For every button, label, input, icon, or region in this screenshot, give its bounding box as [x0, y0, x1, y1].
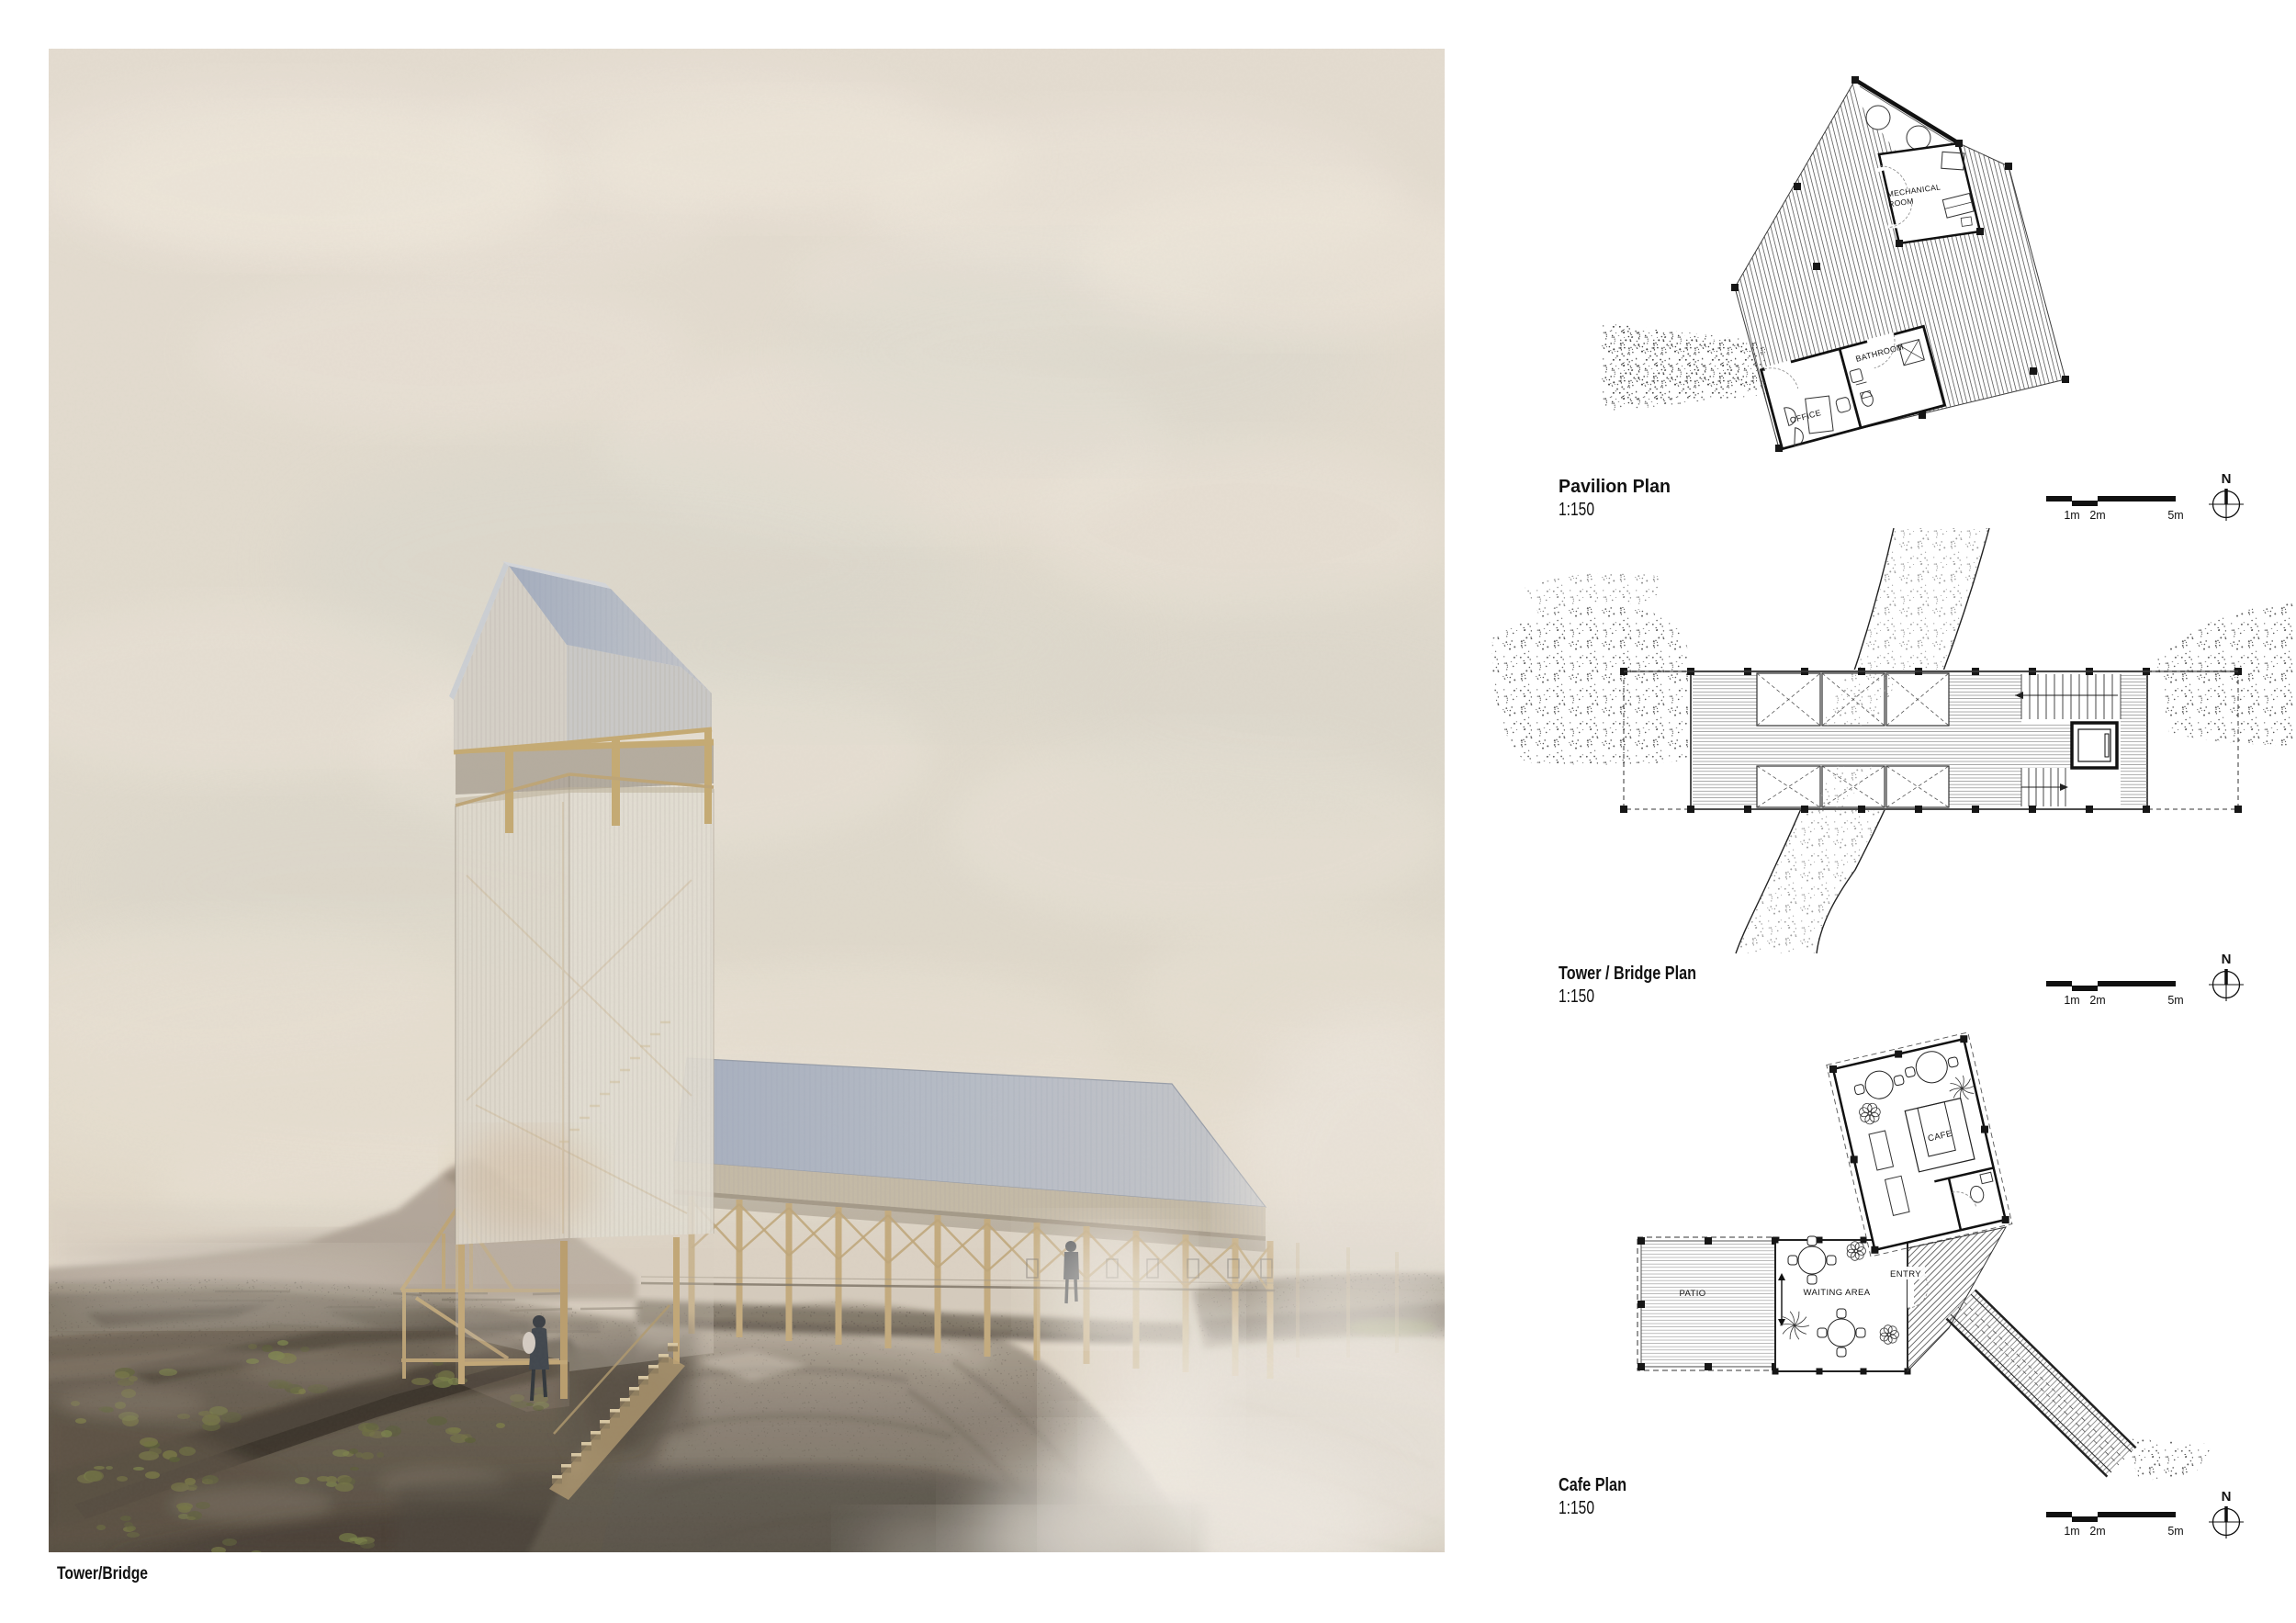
svg-text:1:150: 1:150	[1559, 1498, 1594, 1518]
svg-text:Cafe Plan: Cafe Plan	[1559, 1475, 1626, 1495]
svg-text:1m: 1m	[2064, 1525, 2079, 1538]
svg-text:2m: 2m	[2089, 509, 2105, 522]
svg-text:5m: 5m	[2167, 509, 2183, 522]
svg-text:1m: 1m	[2064, 509, 2079, 522]
svg-text:5m: 5m	[2167, 994, 2183, 1007]
svg-text:WAITING AREA: WAITING AREA	[1803, 1288, 1870, 1298]
svg-text:5m: 5m	[2167, 1525, 2183, 1538]
svg-text:Tower / Bridge Plan: Tower / Bridge Plan	[1559, 964, 1696, 984]
svg-text:N: N	[2222, 471, 2232, 487]
svg-text:ENTRY: ENTRY	[1890, 1269, 1921, 1279]
svg-text:2m: 2m	[2089, 1525, 2105, 1538]
svg-text:1:150: 1:150	[1559, 500, 1594, 520]
svg-text:Pavilion Plan: Pavilion Plan	[1559, 477, 1671, 497]
svg-text:1:150: 1:150	[1559, 986, 1594, 1007]
svg-text:N: N	[2222, 1489, 2232, 1505]
svg-text:PATIO: PATIO	[1679, 1289, 1705, 1299]
svg-text:1m: 1m	[2064, 994, 2079, 1007]
svg-text:2m: 2m	[2089, 994, 2105, 1007]
svg-text:N: N	[2222, 952, 2232, 967]
svg-text:Tower/Bridge: Tower/Bridge	[57, 1564, 148, 1584]
